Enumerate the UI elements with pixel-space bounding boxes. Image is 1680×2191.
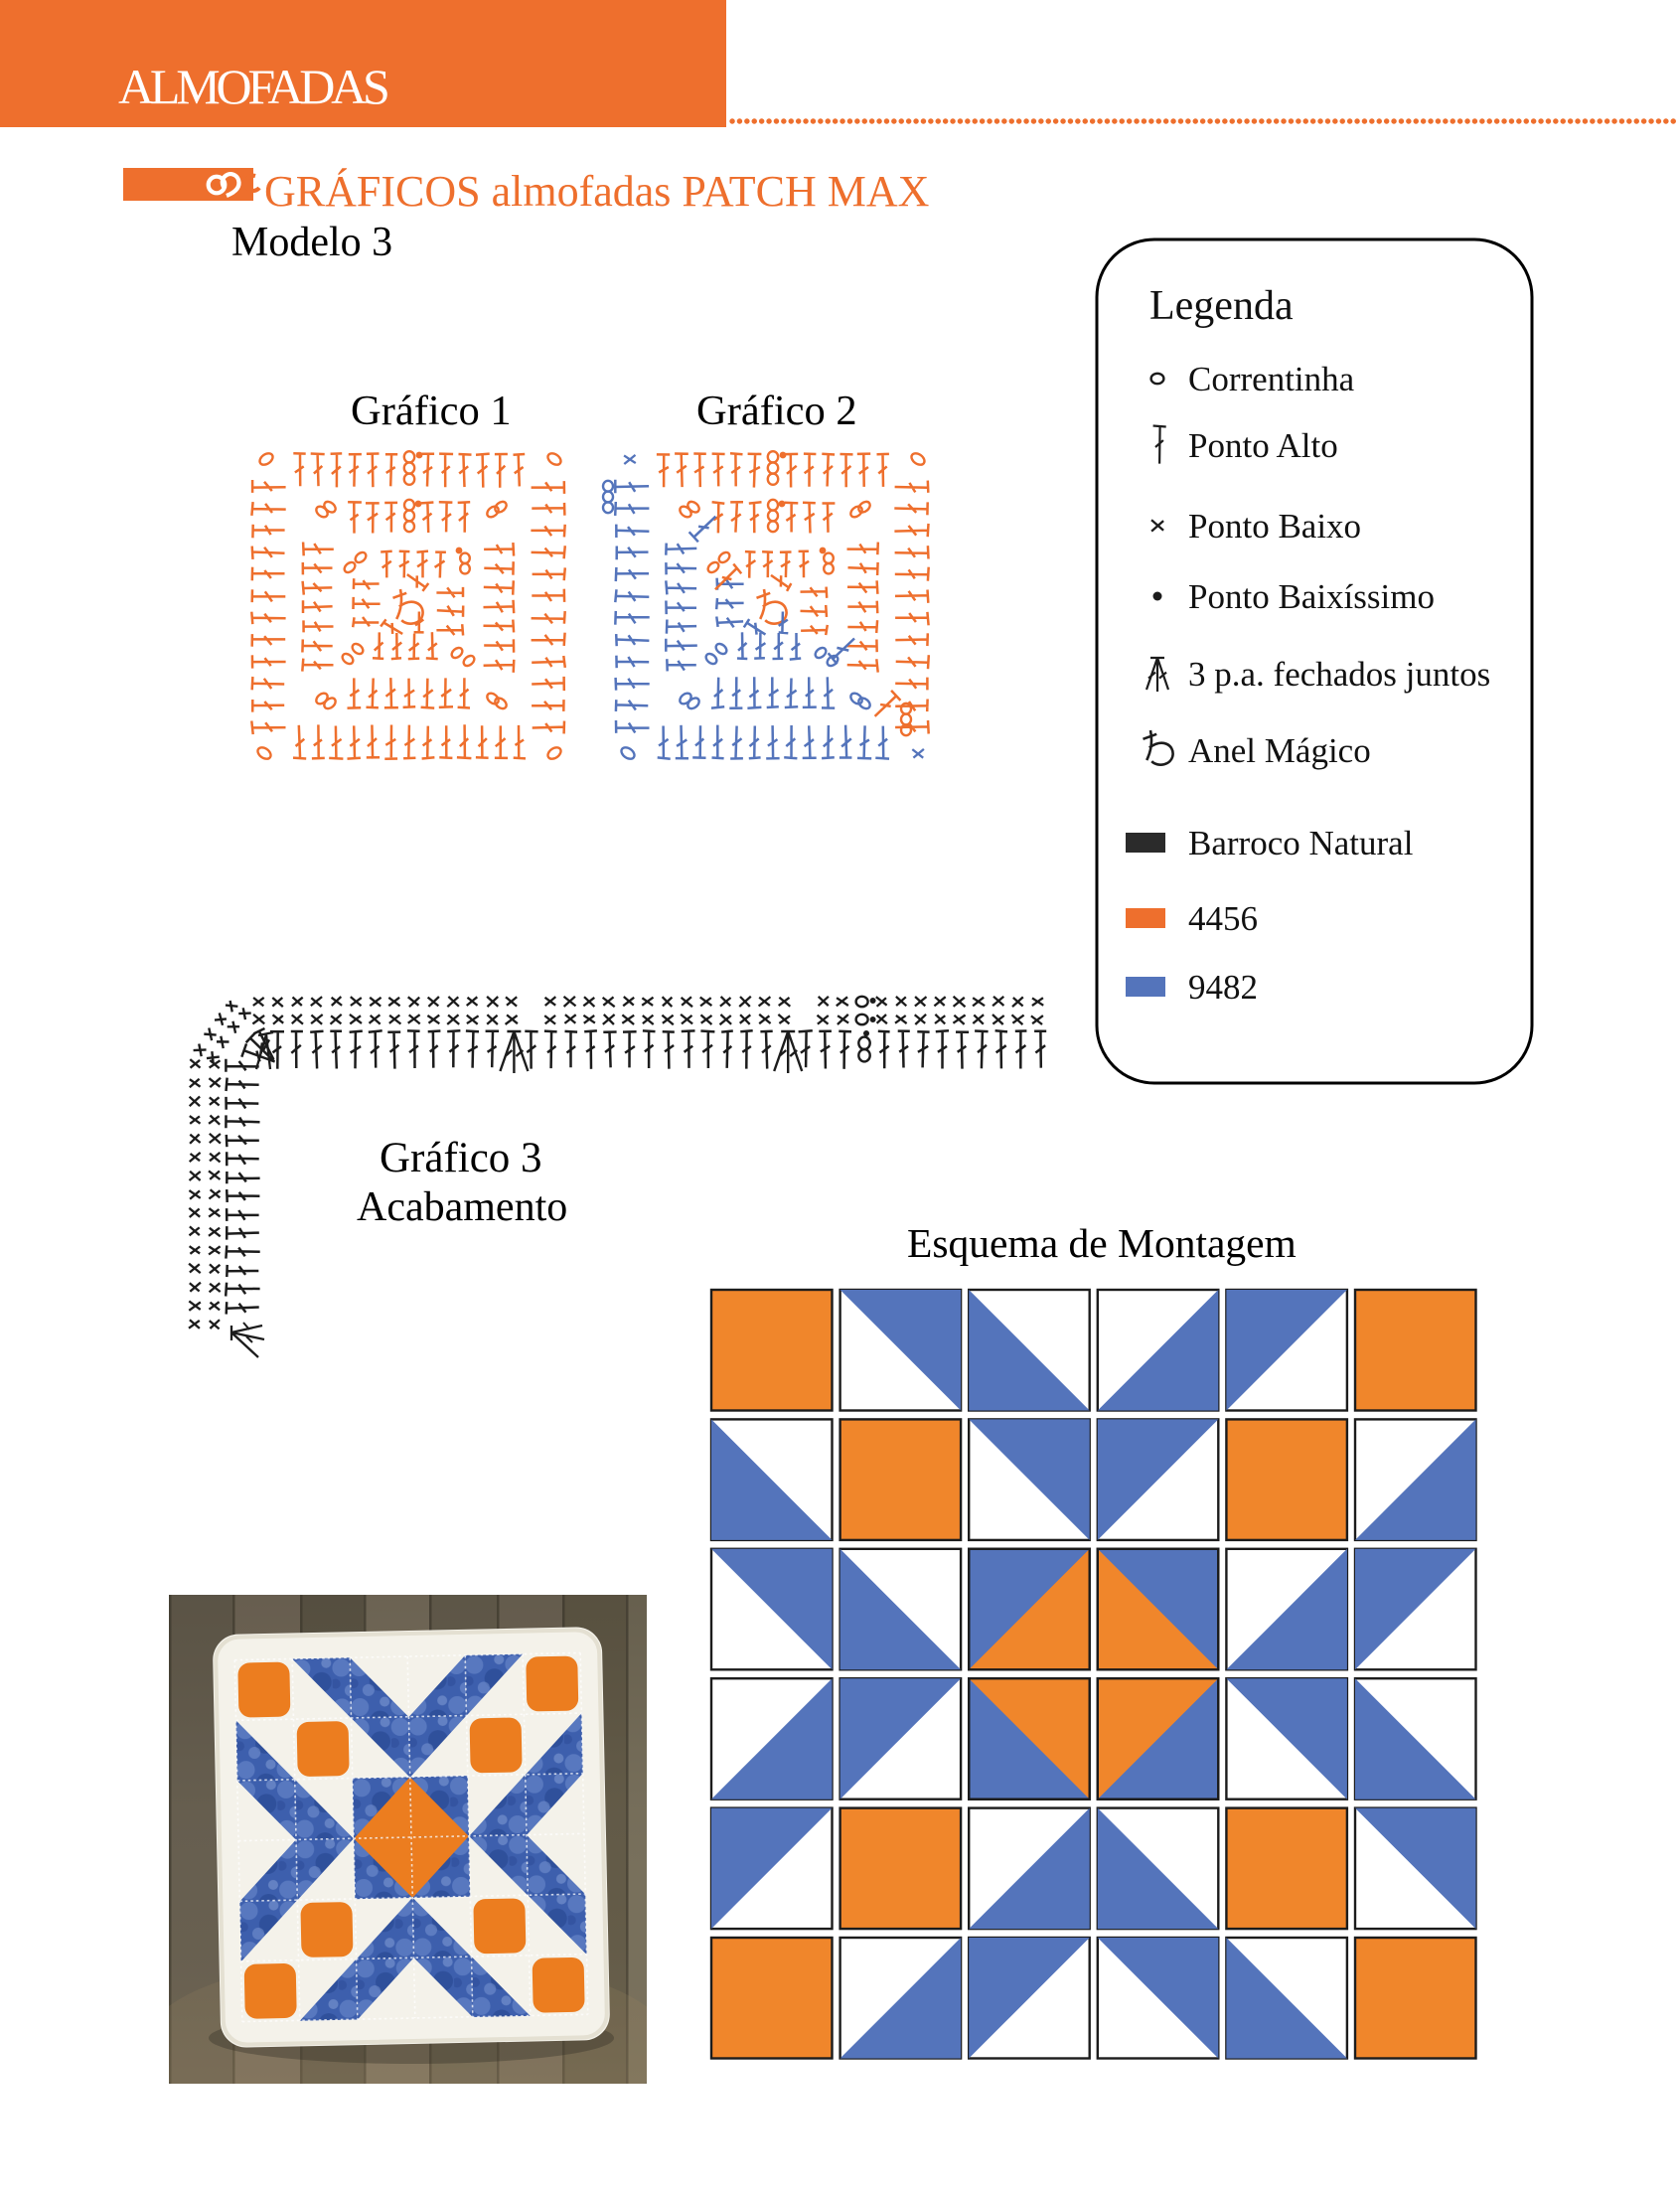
svg-text:Ponto Alto: Ponto Alto xyxy=(1188,426,1338,465)
svg-text:Legenda: Legenda xyxy=(1149,283,1294,329)
svg-text:Anel Mágico: Anel Mágico xyxy=(1188,731,1371,770)
svg-text:Ponto Baixo: Ponto Baixo xyxy=(1188,507,1361,546)
svg-text:Correntinha: Correntinha xyxy=(1188,360,1355,398)
svg-text:3 p.a. fechados juntos: 3 p.a. fechados juntos xyxy=(1188,655,1490,694)
svg-text:Barroco Natural: Barroco Natural xyxy=(1188,824,1414,862)
svg-text:4456: 4456 xyxy=(1188,899,1258,938)
svg-text:9482: 9482 xyxy=(1188,968,1258,1007)
svg-text:Ponto Baixíssimo: Ponto Baixíssimo xyxy=(1188,577,1435,616)
